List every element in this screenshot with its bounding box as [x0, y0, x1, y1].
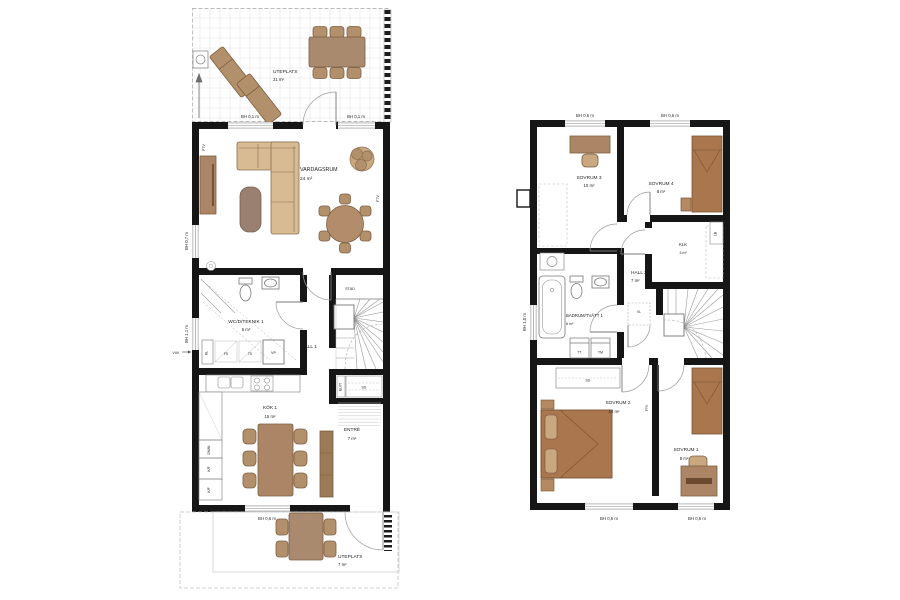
patio-bottom-area: 7 m²	[338, 562, 347, 567]
toilet	[239, 278, 252, 301]
vp-label: VP	[271, 351, 276, 355]
desk-drawer	[686, 478, 712, 484]
svg-text:VUK: VUK	[173, 351, 181, 355]
nightstand	[541, 479, 554, 491]
laundry-machines	[570, 338, 610, 358]
wardrobe-dashed	[539, 184, 567, 246]
storage-bench	[320, 431, 333, 497]
room-label: WC/D/TEKNIK 1	[228, 319, 264, 325]
ftv-marker: FTV	[376, 194, 380, 202]
round-dining-table	[319, 194, 371, 253]
hall-closets: EL/IT SG	[337, 376, 382, 397]
nightstand	[681, 198, 691, 211]
toilet	[570, 276, 583, 299]
kf-label: K/F	[207, 466, 211, 471]
window-height-label: BH 0,6 m	[576, 113, 594, 118]
bed-single	[692, 136, 722, 212]
vl-label: VL	[637, 310, 641, 314]
plant	[350, 147, 374, 171]
patio-table-set	[276, 513, 336, 560]
window-height-label: BH 1,1 m	[184, 325, 189, 343]
window-height-label: BH 0,1 m	[241, 114, 259, 119]
kitchen-counter	[206, 375, 300, 392]
room-label: SOVRUM 3	[576, 175, 601, 181]
patio-door-gap	[303, 122, 336, 129]
el-it-label: EL/IT	[339, 383, 343, 391]
room-label: VARDAGSRUM	[300, 167, 338, 173]
stad-label: STÄD	[345, 287, 355, 291]
desk-chair	[582, 154, 598, 167]
sovrum2: SG SOVRUM 2 14 m² FTV	[541, 368, 649, 491]
floorplan-drawing: UTEPLATS 21 m² BH 0,1 m BH 0,1 m BH 0,7 …	[0, 0, 900, 600]
ts-label: TS	[248, 352, 253, 356]
shower	[201, 279, 235, 313]
kok: DM/M K/F K/F KÖK 1 15 m²	[199, 375, 333, 500]
sovrum1: SOVRUM 1 8 m²	[673, 368, 722, 496]
tv-bench	[200, 156, 216, 214]
ftv-marker: FTV	[645, 404, 649, 411]
bed-double	[541, 400, 612, 491]
floorplan-canvas: { "palette": { "wall": "#161616", "thin_…	[0, 0, 900, 600]
room-area: 14 m²	[609, 409, 621, 414]
patio-dining-set	[309, 27, 365, 79]
sovrum3: SOVRUM 3 10 m²	[539, 136, 610, 246]
room-label: HALL 2	[631, 270, 647, 276]
patio-top: UTEPLATS 21 m² BH 0,1 m BH 0,1 m	[193, 9, 392, 125]
window-height-label: BH 0,6 m	[600, 516, 618, 521]
room-area: 15 m²	[265, 414, 277, 419]
chimney	[517, 190, 530, 207]
front-door-gap	[350, 505, 383, 512]
room-area: 3 m²	[679, 251, 687, 255]
kf-label: K/F	[207, 487, 211, 492]
room-area: 6 m²	[242, 327, 251, 332]
coffee-table	[240, 187, 261, 232]
tm-label: TM	[598, 351, 603, 355]
wc-teknik: WC/D/TEKNIK 1 6 m² KL FS TS VP	[201, 277, 296, 364]
wash-basin-2	[592, 276, 609, 288]
wash-basin	[262, 277, 279, 289]
entre: ENTRÉ 7 m²	[338, 403, 381, 441]
room-label: SOVRUM 2	[605, 400, 630, 406]
dmm-label: DM/M	[207, 445, 211, 454]
room-label: ENTRÉ	[344, 426, 360, 433]
room-label: SOVRUM 4	[648, 181, 673, 187]
nightstand	[541, 400, 554, 409]
vl-closet	[628, 303, 650, 325]
room-label: BADRUM/TVÄTT 1	[566, 313, 604, 318]
room-area: 7 m²	[631, 278, 640, 283]
badrum: TT TM BADRUM/TVÄTT 1 6 m²	[539, 253, 610, 358]
window-height-label: BH 0,6 m	[688, 516, 706, 521]
room-area: 8 m²	[680, 456, 689, 461]
window-height-label: BH 0,1 m	[347, 114, 365, 119]
grill	[193, 51, 208, 68]
floor-1-plan: UTEPLATS 21 m² BH 0,1 m BH 0,1 m BH 0,7 …	[173, 9, 399, 589]
patio-top-area: 21 m²	[273, 77, 285, 82]
room-area: 6 m²	[566, 322, 574, 326]
kl-label: KL	[205, 351, 209, 355]
pillow	[545, 449, 557, 473]
stairs-floor1: STÄD	[334, 287, 383, 369]
stairs-floor2	[663, 289, 723, 358]
window-height-label: BH 0,7 m	[184, 232, 189, 250]
kitchen-dining-set	[243, 424, 307, 496]
sovrum4: SOVRUM 4 8 m²	[648, 136, 722, 212]
bed-single	[692, 368, 722, 434]
doormat-hatch	[338, 403, 381, 425]
bathtub	[539, 276, 565, 338]
window-height-label: BH 0,6 m	[258, 516, 276, 521]
window-height-label: BH 1,0 m	[522, 313, 527, 331]
room-label: SOVRUM 1	[673, 447, 698, 453]
floor-drain-icon	[207, 262, 216, 271]
klk: LB KLK 3 m²	[679, 222, 723, 278]
tt-label: TT	[577, 351, 581, 355]
desk	[570, 136, 610, 153]
washbasin	[540, 253, 564, 270]
room-area: 8 m²	[657, 189, 666, 194]
window-height-label: BH 0,6 m	[661, 113, 679, 118]
room-label: HALL 1	[301, 344, 317, 350]
room-area: 7 m²	[348, 436, 357, 441]
lb-label: LB	[714, 231, 718, 236]
room-area: 24 m²	[300, 176, 313, 182]
sg-label: SG	[586, 379, 591, 383]
sg-label: SG	[362, 386, 367, 390]
vardagsrum: VARDAGSRUM 24 m² FTV FTV	[200, 142, 380, 271]
floor-2-plan: BH 0,6 m BH 0,6 m BH 1,0 m BH 0,6 m BH 0…	[517, 113, 730, 521]
room-label: KLK	[679, 242, 687, 247]
room-label: KÖK 1	[263, 404, 277, 411]
patio-top-label: UTEPLATS	[273, 69, 297, 75]
patio-bottom: UTEPLATS 7 m²	[180, 512, 399, 588]
vuk-marker: VUK	[173, 351, 192, 356]
pillow	[545, 415, 557, 439]
patio-bottom-label: UTEPLATS	[338, 554, 362, 560]
ftv-marker: FTV	[202, 143, 206, 151]
entry-arrow	[196, 74, 202, 118]
room-area: 10 m²	[584, 183, 596, 188]
fs-label: FS	[224, 352, 229, 356]
